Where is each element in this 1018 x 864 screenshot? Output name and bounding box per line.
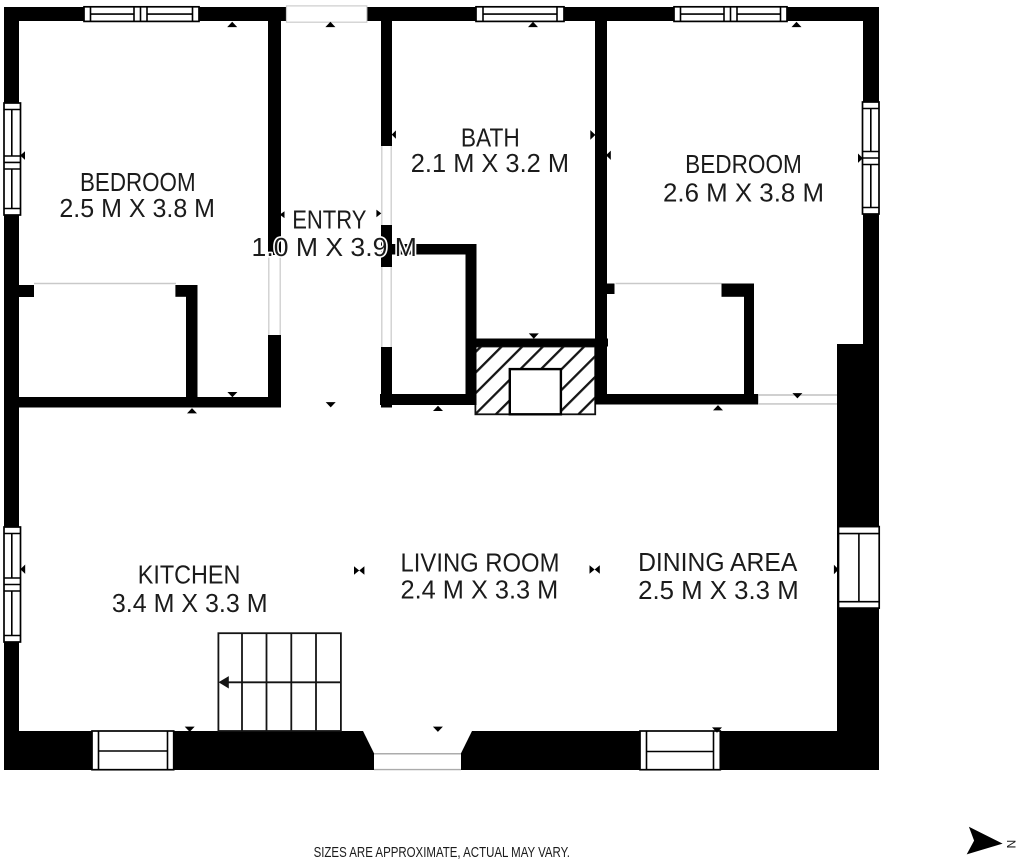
svg-text:KITCHEN: KITCHEN <box>138 560 241 590</box>
svg-text:SIZES ARE APPROXIMATE, ACTUAL: SIZES ARE APPROXIMATE, ACTUAL MAY VARY. <box>314 845 570 861</box>
svg-text:2.5 M X 3.3 M: 2.5 M X 3.3 M <box>638 575 799 605</box>
svg-text:LIVING ROOM: LIVING ROOM <box>401 547 560 577</box>
svg-text:2.5 M X 3.8 M: 2.5 M X 3.8 M <box>59 193 215 223</box>
svg-text:2.1 M X 3.2 M: 2.1 M X 3.2 M <box>411 148 569 178</box>
svg-text:N: N <box>1004 840 1018 849</box>
svg-text:2.6 M X 3.8 M: 2.6 M X 3.8 M <box>663 177 824 207</box>
svg-text:DINING AREA: DINING AREA <box>638 547 798 577</box>
svg-text:2.4 M X 3.3 M: 2.4 M X 3.3 M <box>401 574 559 604</box>
svg-text:3.4 M X 3.3 M: 3.4 M X 3.3 M <box>112 588 268 618</box>
svg-text:BEDROOM: BEDROOM <box>685 149 802 179</box>
svg-text:ENTRY: ENTRY <box>292 205 366 235</box>
svg-text:1.0 M X 3.9 M: 1.0 M X 3.9 M <box>252 232 417 262</box>
